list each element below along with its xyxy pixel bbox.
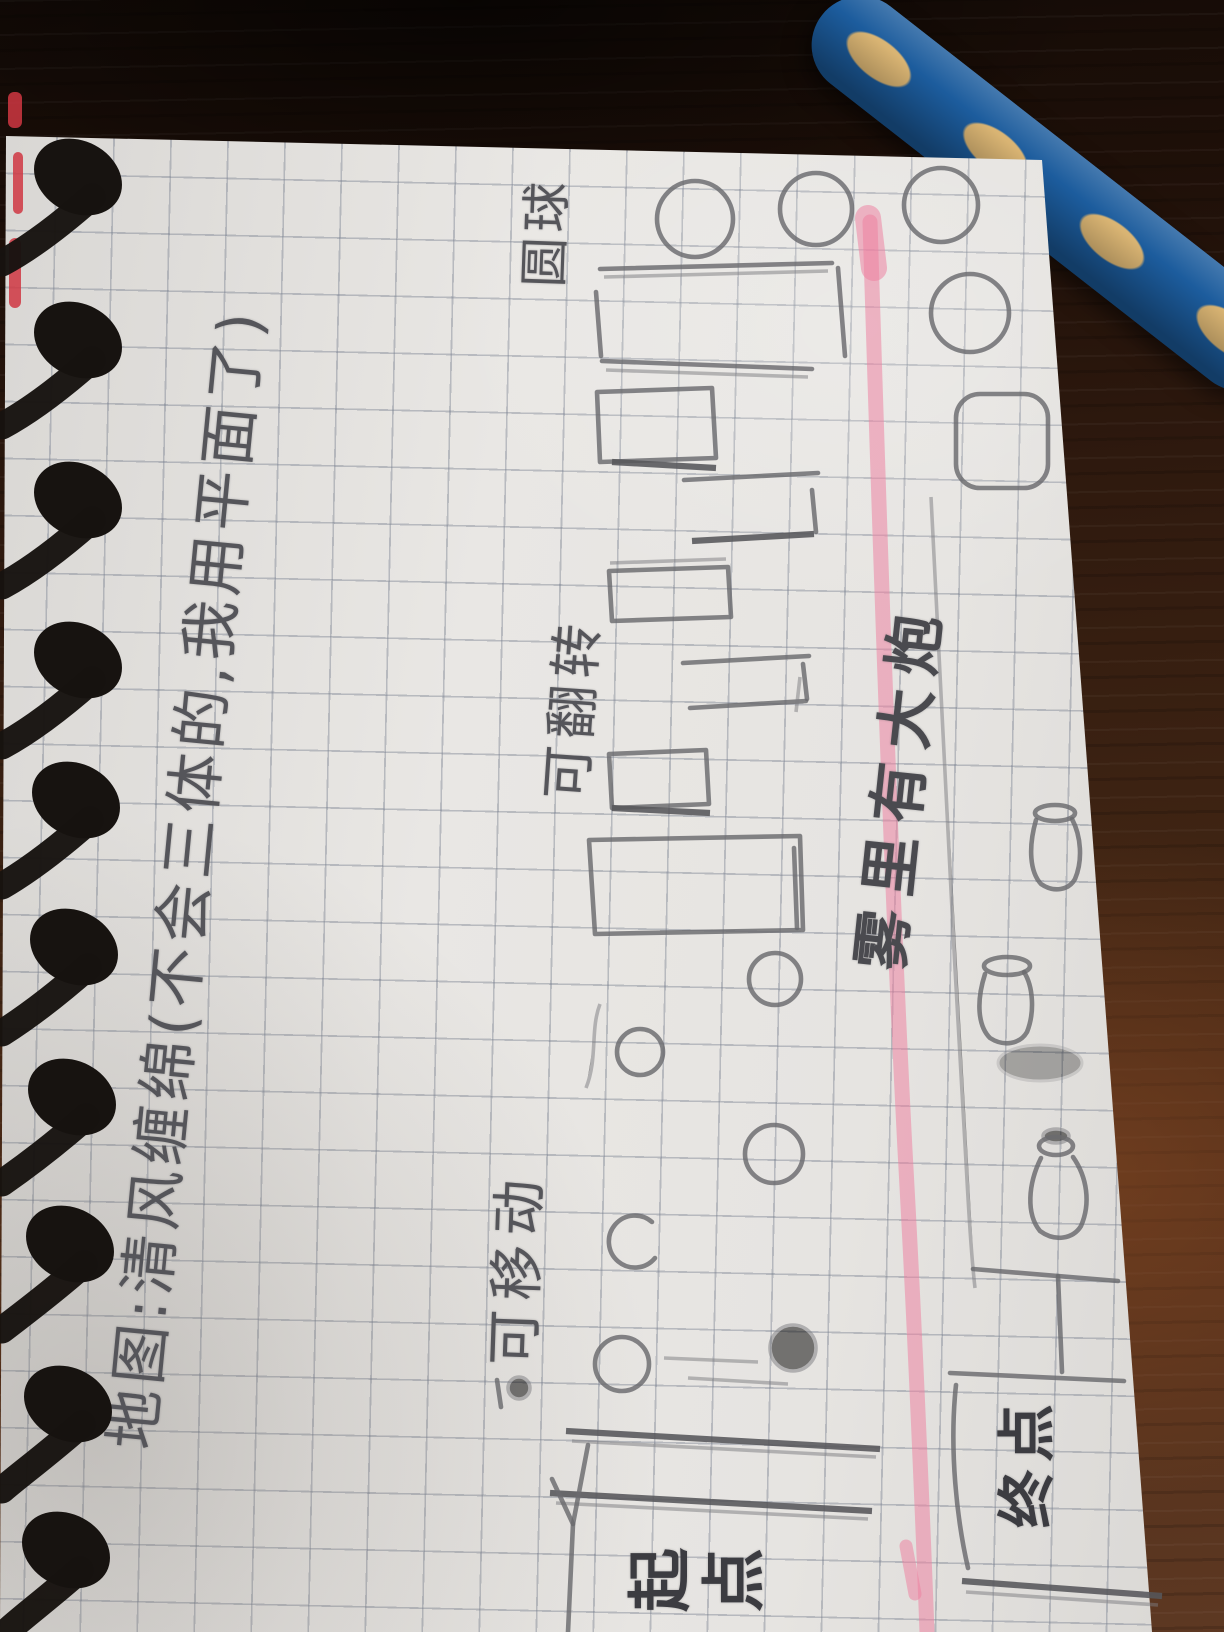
spiral-binding	[0, 0, 1224, 1632]
page-edge-marks	[8, 92, 23, 308]
notebook-photo: 地图:清风缠绵(不会三体的,我用平面了) 可移动 可翻转 圆球 雾里有大炮 起点…	[0, 0, 1224, 1632]
spiral-coil	[2, 124, 136, 1632]
